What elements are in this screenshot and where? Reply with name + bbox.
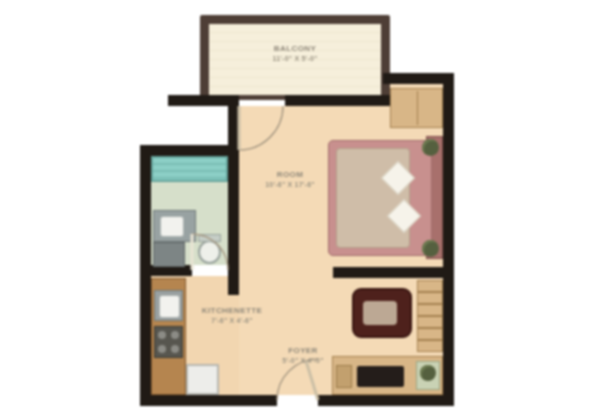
plant-icon (422, 139, 439, 156)
wall-bottom-left-segment (140, 395, 277, 406)
wardrobe (390, 88, 443, 128)
bathroom-cabinet (153, 242, 185, 267)
foyer-dims: 5'-0" X 4'-0" (263, 356, 343, 366)
balcony-label: BALCONY 11'-0" X 5'-0" (240, 44, 350, 64)
floor-plan: BALCONY 11'-0" X 5'-0" ROOM 10'-6" X 17'… (0, 0, 600, 418)
stove-icon (154, 326, 183, 358)
room-label: ROOM 10'-6" X 17'-6" (235, 170, 345, 190)
table-tray (363, 301, 397, 325)
floor-plan-image: BALCONY 11'-0" X 5'-0" ROOM 10'-6" X 17'… (0, 0, 600, 418)
kitchenette-dims: 7'-6" X 4'-6" (182, 316, 282, 326)
wall-bottom-right-segment (318, 395, 454, 406)
kitchenette-label: KITCHENETTE 7'-6" X 4'-6" (182, 306, 282, 326)
kitchenette-name: KITCHENETTE (182, 306, 282, 316)
shelving-unit (417, 280, 443, 352)
balcony-dims: 11'-0" X 5'-0" (240, 54, 350, 64)
toilet-icon (198, 240, 221, 264)
balcony-name: BALCONY (240, 44, 350, 54)
fridge-icon (186, 364, 219, 395)
room-dims: 10'-6" X 17'-6" (235, 180, 345, 190)
wall-top-right-segment (285, 95, 390, 106)
foyer-label: FOYER 5'-0" X 4'-0" (263, 346, 343, 366)
bathroom-sink-icon (160, 216, 184, 237)
bathtub (151, 156, 228, 182)
tv-icon (357, 366, 404, 387)
kitchen-sink-basin (159, 295, 180, 318)
foyer-name: FOYER (263, 346, 343, 356)
room-name: ROOM (235, 170, 345, 180)
toilet-tank (198, 234, 221, 242)
wall-bathroom-top (140, 145, 239, 156)
wall-bathroom-right (228, 145, 239, 295)
wall-bedroom-living-divider (333, 267, 443, 278)
plant-icon (422, 240, 439, 257)
console-drawer (336, 365, 352, 388)
plant-icon (420, 365, 436, 381)
wall-right (443, 73, 454, 406)
